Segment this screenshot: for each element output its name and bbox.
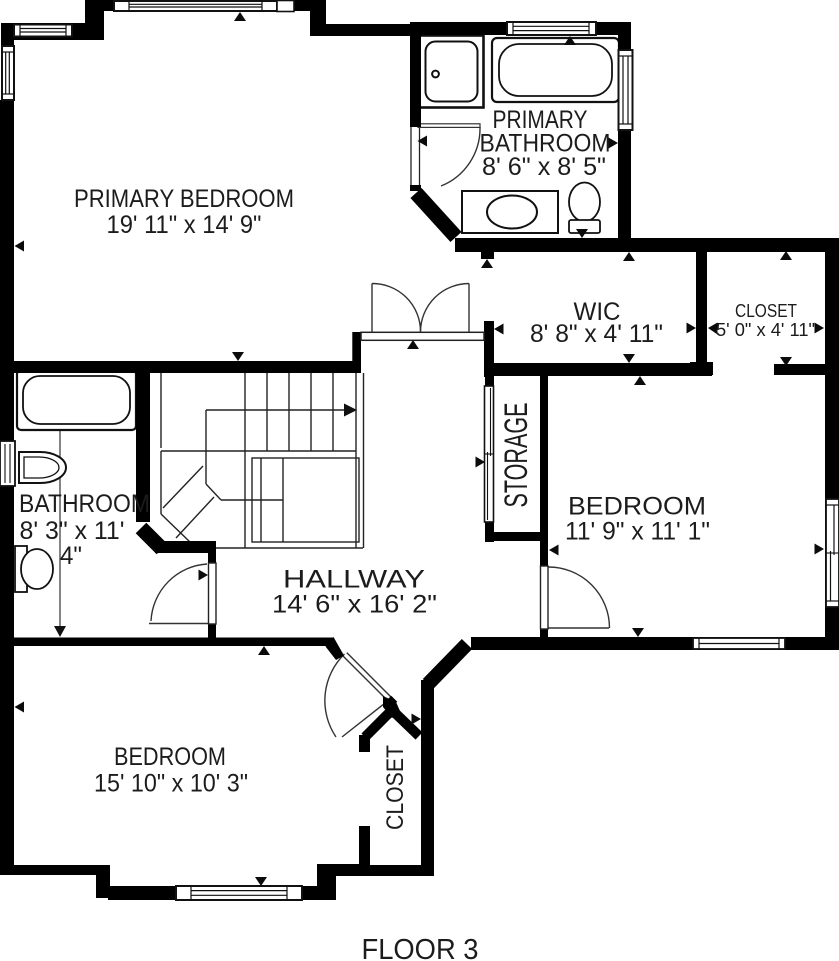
svg-text:CLOSET: CLOSET [382,745,409,830]
svg-text:BEDROOM: BEDROOM [568,493,706,521]
svg-text:8' 6" x 8' 5": 8' 6" x 8' 5" [482,153,606,181]
svg-text:4": 4" [60,542,82,570]
svg-text:BATHROOM: BATHROOM [19,490,150,518]
svg-text:HALLWAY: HALLWAY [283,566,425,594]
svg-text:5' 0" x 4' 11": 5' 0" x 4' 11" [716,319,815,340]
svg-text:11' 9" x 11' 1": 11' 9" x 11' 1" [565,518,710,546]
svg-text:19' 11" x 14' 9": 19' 11" x 14' 9" [107,211,262,239]
svg-text:CLOSET: CLOSET [735,300,797,321]
svg-text:8' 3" x 11': 8' 3" x 11' [20,517,125,545]
svg-text:STORAGE: STORAGE [498,403,534,508]
svg-text:FLOOR 3: FLOOR 3 [362,934,479,961]
svg-text:BEDROOM: BEDROOM [114,743,226,771]
svg-text:8' 8" x 4' 11": 8' 8" x 4' 11" [530,320,663,348]
svg-text:15' 10" x 10' 3": 15' 10" x 10' 3" [94,770,248,798]
svg-text:14' 6" x 16' 2": 14' 6" x 16' 2" [272,591,437,619]
svg-text:PRIMARY BEDROOM: PRIMARY BEDROOM [74,185,294,213]
